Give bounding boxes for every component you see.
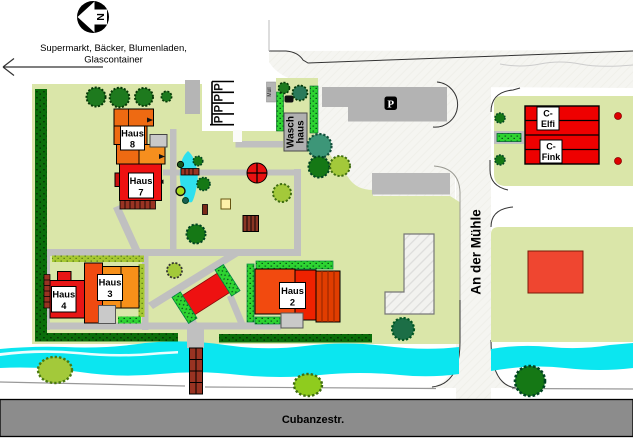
svg-text:An der Mühle: An der Mühle xyxy=(469,209,484,295)
svg-text:C-: C- xyxy=(543,109,553,119)
svg-text:2: 2 xyxy=(290,298,295,308)
svg-text:8: 8 xyxy=(130,140,135,150)
svg-text:Cubanzestr.: Cubanzestr. xyxy=(282,414,344,426)
svg-text:Haus: Haus xyxy=(99,278,122,288)
svg-text:Haus: Haus xyxy=(130,176,153,186)
svg-text:7: 7 xyxy=(138,188,143,198)
svg-text:Haus: Haus xyxy=(281,286,304,296)
svg-text:N: N xyxy=(95,13,107,21)
svg-text:Elfi: Elfi xyxy=(541,119,555,129)
svg-text:haus: haus xyxy=(296,120,307,144)
svg-text:Fink: Fink xyxy=(542,152,561,162)
svg-text:Müll: Müll xyxy=(267,87,273,96)
svg-text:Glascontainer: Glascontainer xyxy=(84,55,143,66)
svg-text:P: P xyxy=(214,94,226,102)
svg-text:3: 3 xyxy=(107,289,112,299)
svg-text:4: 4 xyxy=(61,301,67,311)
svg-text:C-: C- xyxy=(546,142,556,152)
svg-text:P: P xyxy=(214,115,226,123)
svg-text:P: P xyxy=(387,99,394,111)
svg-text:Haus: Haus xyxy=(121,129,144,139)
svg-text:P: P xyxy=(214,83,226,91)
svg-text:Supermarkt, Bäcker, Blumenlade: Supermarkt, Bäcker, Blumenladen, xyxy=(40,43,187,54)
svg-text:Haus: Haus xyxy=(52,290,75,300)
svg-text:P: P xyxy=(214,104,226,112)
